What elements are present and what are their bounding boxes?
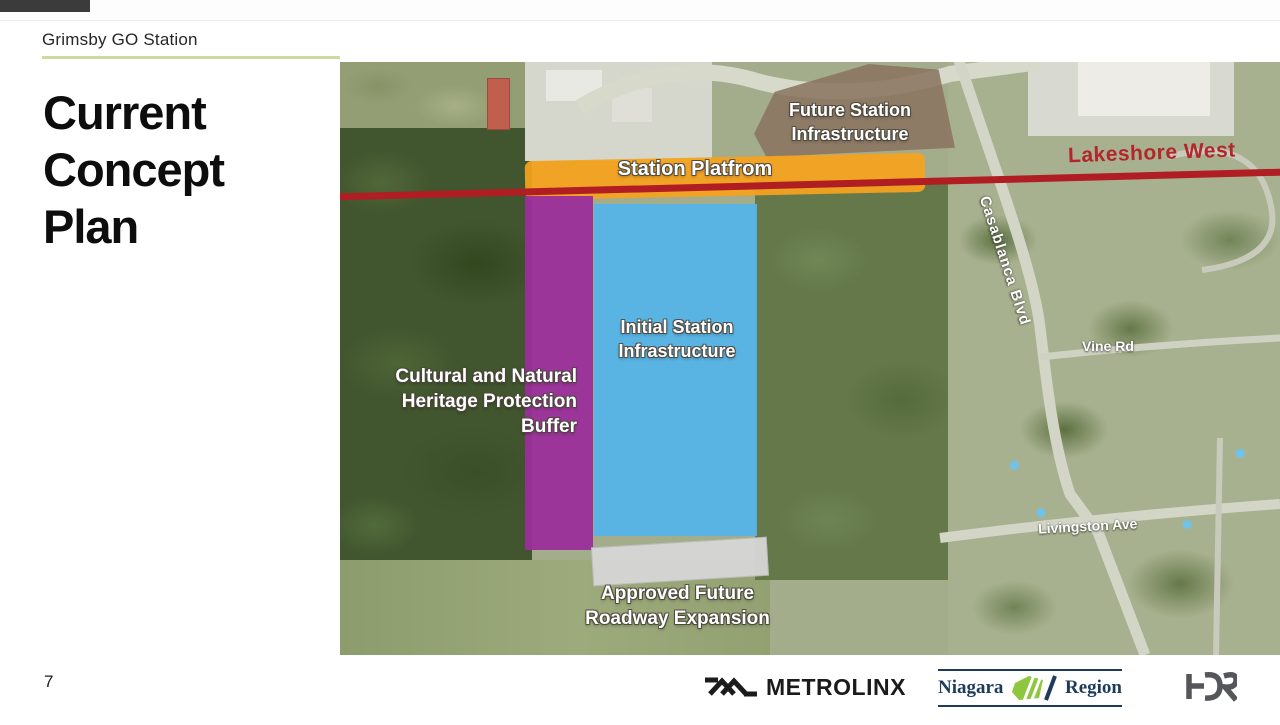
metrolinx-chevrons-icon: [703, 674, 759, 700]
top-strip: [0, 0, 1280, 21]
niagara-bottom-rule: [938, 705, 1122, 707]
page-title: Current Concept Plan: [43, 84, 224, 255]
eyebrow-underline: [42, 56, 340, 59]
metrolinx-wordmark: METROLINX: [766, 674, 906, 701]
title-line: Plan: [43, 198, 224, 255]
niagara-region-shape-icon: [1009, 674, 1059, 702]
initial-station-label: Initial Station Infrastructure: [588, 315, 766, 363]
metrolinx-logo: METROLINX: [703, 672, 906, 702]
satellite-map: Future Station Infrastructure Station Pl…: [340, 62, 1280, 655]
initial-station-overlay: [594, 204, 757, 536]
roadway-expansion-label: Approved Future Roadway Expansion: [560, 581, 795, 631]
top-left-dark-bar: [0, 0, 90, 12]
station-platform-label: Station Platfrom: [590, 157, 800, 182]
future-station-label: Future Station Infrastructure: [740, 98, 960, 146]
niagara-row: Niagara Region: [938, 671, 1122, 705]
title-line: Concept: [43, 141, 224, 198]
slide-eyebrow: Grimsby GO Station: [42, 30, 198, 50]
vine-rd-label: Vine Rd: [1082, 338, 1134, 354]
niagara-wordmark-right: Region: [1065, 677, 1122, 699]
niagara-wordmark-left: Niagara: [938, 677, 1003, 699]
niagara-region-logo: Niagara Region: [938, 669, 1122, 707]
hdr-logo: [1185, 671, 1237, 707]
hdr-logo-icon: [1185, 671, 1237, 702]
heritage-buffer-label: Cultural and Natural Heritage Protection…: [367, 364, 577, 439]
title-line: Current: [43, 84, 224, 141]
page-number: 7: [44, 672, 53, 692]
presentation-slide: Grimsby GO Station Current Concept Plan …: [0, 0, 1280, 725]
